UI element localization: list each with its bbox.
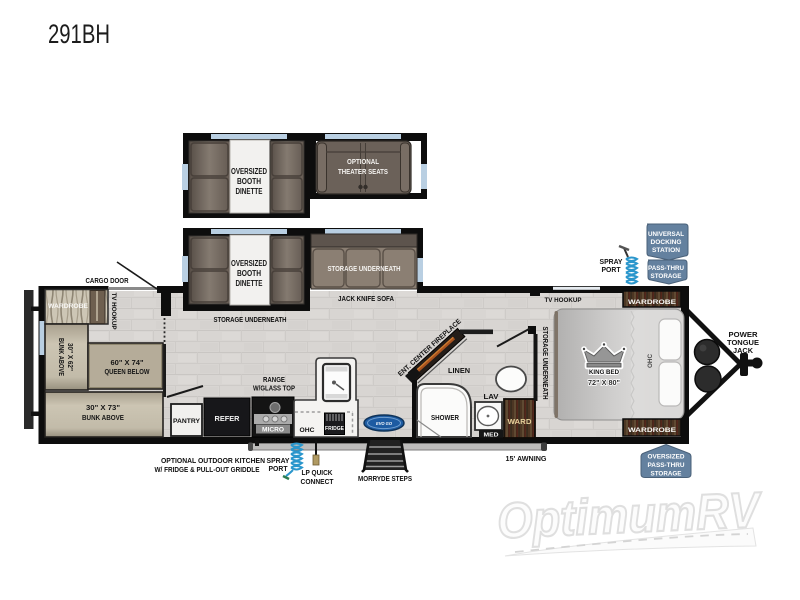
svg-text:TONGUE: TONGUE	[727, 340, 759, 347]
svg-text:STORAGE: STORAGE	[651, 273, 682, 280]
svg-text:BUNK ABOVE: BUNK ABOVE	[57, 338, 64, 376]
svg-text:STORAGE UNDERNEATH: STORAGE UNDERNEATH	[214, 315, 287, 324]
svg-text:QUEEN BELOW: QUEEN BELOW	[105, 367, 151, 376]
svg-text:SPRAY: SPRAY	[600, 259, 623, 266]
svg-text:OHC: OHC	[300, 427, 315, 434]
svg-text:DOCKING: DOCKING	[651, 239, 682, 246]
svg-text:CARGO DOOR: CARGO DOOR	[86, 276, 129, 285]
svg-text:W/ FRIDGE & PULL-OUT GRIDDLE: W/ FRIDGE & PULL-OUT GRIDDLE	[155, 465, 260, 474]
svg-text:JACK KNIFE SOFA: JACK KNIFE SOFA	[338, 294, 394, 303]
svg-text:CONNECT: CONNECT	[301, 479, 335, 486]
svg-text:LINEN: LINEN	[448, 368, 470, 375]
svg-text:OVERSIZED: OVERSIZED	[648, 454, 685, 461]
svg-text:BOOTH: BOOTH	[237, 177, 261, 186]
svg-text:MORRYDE STEPS: MORRYDE STEPS	[358, 474, 412, 483]
svg-text:DINETTE: DINETTE	[236, 279, 264, 288]
svg-text:WARDROBE: WARDROBE	[628, 427, 677, 434]
svg-text:BUNK ABOVE: BUNK ABOVE	[82, 413, 124, 422]
svg-text:PORT: PORT	[602, 267, 622, 274]
svg-text:STORAGE UNDERNEATH: STORAGE UNDERNEATH	[541, 327, 548, 400]
svg-text:LP QUICK: LP QUICK	[302, 470, 333, 477]
svg-text:15' AWNING: 15' AWNING	[506, 454, 547, 463]
svg-text:PANTRY: PANTRY	[173, 418, 201, 425]
svg-text:OVERSIZED: OVERSIZED	[231, 259, 267, 268]
svg-text:THEATER SEATS: THEATER SEATS	[338, 167, 388, 176]
svg-text:POWER: POWER	[729, 332, 758, 339]
svg-text:SHOWER: SHOWER	[431, 415, 459, 422]
svg-text:SPRAY: SPRAY	[267, 458, 290, 465]
svg-text:W/GLASS TOP: W/GLASS TOP	[253, 386, 295, 393]
svg-text:MICRO: MICRO	[262, 427, 284, 434]
svg-text:RANGE: RANGE	[263, 377, 285, 384]
svg-text:TV HOOKUP: TV HOOKUP	[110, 293, 117, 331]
svg-text:WARDROBE: WARDROBE	[48, 303, 89, 310]
svg-text:MED: MED	[484, 433, 499, 439]
svg-text:WARD: WARD	[508, 417, 533, 426]
svg-text:30" X 62": 30" X 62"	[66, 343, 73, 371]
svg-text:TV HOOKUP: TV HOOKUP	[545, 297, 583, 304]
svg-text:STORAGE: STORAGE	[651, 471, 682, 478]
svg-text:WARDROBE: WARDROBE	[628, 299, 677, 306]
svg-text:KING BED: KING BED	[589, 369, 619, 376]
svg-text:PASS-THRU: PASS-THRU	[648, 265, 684, 272]
svg-text:FRIDGE: FRIDGE	[325, 426, 344, 432]
svg-text:OHC: OHC	[647, 353, 654, 368]
svg-text:60" X 74": 60" X 74"	[111, 358, 144, 367]
svg-text:STATION: STATION	[652, 247, 680, 254]
svg-text:72" X 80": 72" X 80"	[588, 378, 620, 387]
svg-text:EVO GO: EVO GO	[376, 421, 392, 426]
svg-text:PORT: PORT	[269, 466, 289, 473]
svg-text:STORAGE UNDERNEATH: STORAGE UNDERNEATH	[328, 264, 401, 273]
svg-text:291BH: 291BH	[48, 19, 110, 49]
svg-text:JACK: JACK	[733, 348, 753, 355]
svg-text:UNIVERSAL: UNIVERSAL	[648, 231, 684, 238]
svg-text:LAV: LAV	[484, 394, 499, 401]
svg-text:REFER: REFER	[215, 416, 240, 423]
svg-text:OPTIONAL OUTDOOR KITCHEN: OPTIONAL OUTDOOR KITCHEN	[161, 456, 265, 465]
svg-text:30" X 73": 30" X 73"	[86, 403, 120, 412]
svg-text:OPTIONAL: OPTIONAL	[347, 157, 379, 166]
svg-text:DINETTE: DINETTE	[236, 187, 264, 196]
svg-text:OVERSIZED: OVERSIZED	[231, 167, 267, 176]
svg-text:PASS-THRU: PASS-THRU	[648, 462, 685, 469]
svg-text:BOOTH: BOOTH	[237, 269, 261, 278]
